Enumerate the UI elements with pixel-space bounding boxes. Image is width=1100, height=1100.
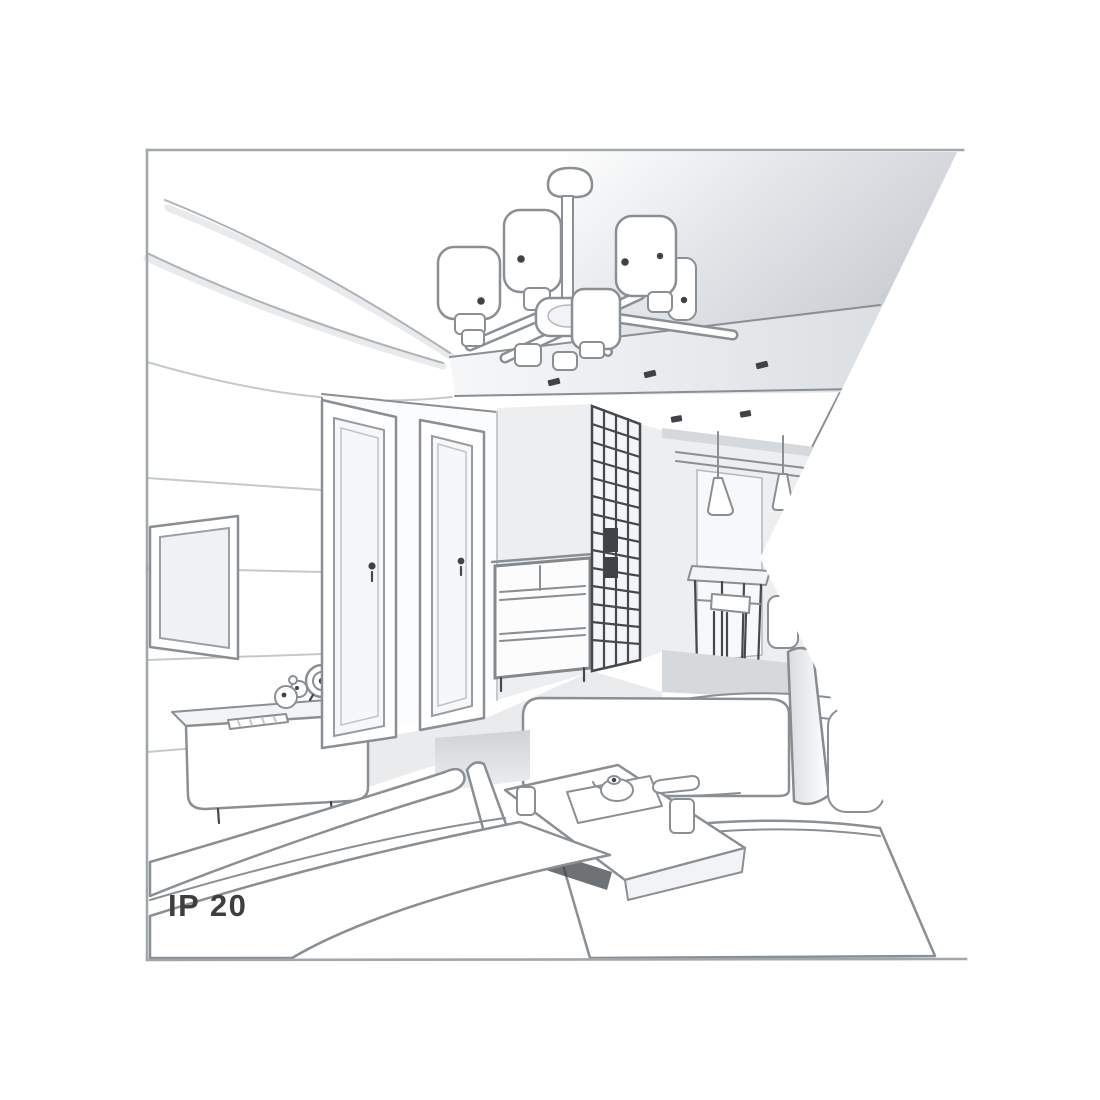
cup	[670, 799, 694, 833]
door-1	[322, 400, 396, 748]
shade-1	[438, 247, 500, 346]
ceiling-canopy	[548, 168, 592, 197]
shade-4	[572, 289, 620, 358]
door-handle	[458, 558, 465, 565]
door-2	[420, 420, 484, 730]
spotlight-icon	[740, 410, 752, 418]
door-handle	[368, 562, 375, 569]
lattice-wardrobe	[592, 406, 662, 671]
wardrobe-handle	[604, 557, 618, 578]
right-margin-mask	[966, 0, 1100, 1100]
ip-rating-label: IP 20	[168, 888, 247, 923]
illustration-canvas: IP 20	[0, 0, 1100, 1100]
spotlight-icon	[671, 415, 683, 423]
socket	[515, 344, 541, 366]
wardrobe-handle	[604, 528, 618, 552]
dresser	[492, 554, 593, 691]
socket	[553, 352, 577, 370]
stem	[562, 196, 573, 302]
wardrobe-side	[640, 424, 662, 660]
cup	[517, 787, 535, 815]
room-sketch: IP 20	[0, 0, 1100, 1100]
shade-2	[504, 210, 561, 310]
tv-screen	[150, 516, 238, 659]
